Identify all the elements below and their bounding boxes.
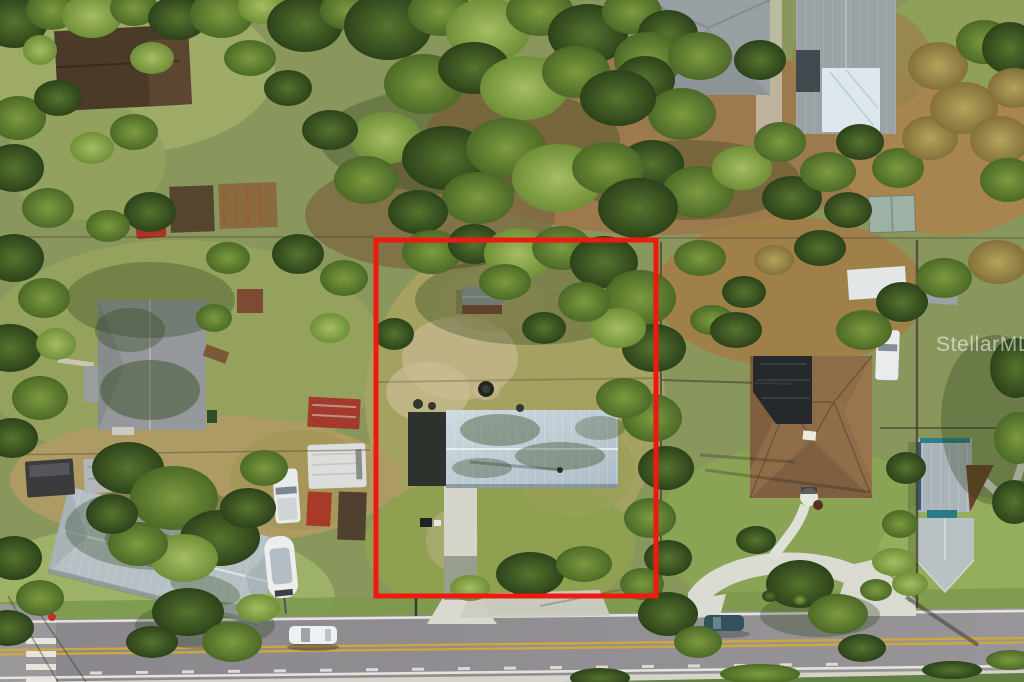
tree <box>916 258 972 298</box>
white-sedan <box>289 626 337 644</box>
round-bush <box>23 35 57 65</box>
tree <box>556 546 612 582</box>
red-shed <box>307 397 360 430</box>
tree <box>800 152 856 192</box>
tree <box>236 594 280 622</box>
tree <box>124 192 176 232</box>
tree <box>110 114 158 150</box>
tree <box>734 40 786 80</box>
tree <box>206 242 250 274</box>
roof-tree-shadow <box>460 414 540 446</box>
windshield <box>713 617 721 629</box>
subject-carport-dark <box>408 412 446 486</box>
skylight <box>803 430 817 440</box>
tree <box>580 70 656 126</box>
subject-house <box>408 410 625 488</box>
tree <box>70 132 114 164</box>
tree <box>794 230 846 266</box>
tree <box>12 376 68 420</box>
windshield <box>301 628 310 642</box>
tree <box>648 88 716 140</box>
tree <box>202 622 262 662</box>
tree <box>808 594 868 634</box>
bush <box>736 526 776 554</box>
shed <box>169 185 215 233</box>
palm-tree <box>892 572 928 596</box>
red-equipment-trailer <box>306 491 332 526</box>
neighbor-house-northeast <box>796 0 896 134</box>
tree <box>886 452 926 484</box>
crosswalk-stripe <box>26 664 56 670</box>
truck-bed <box>277 497 297 520</box>
garden-shed-northeast <box>868 195 915 233</box>
shed-rusty <box>218 182 278 229</box>
tree <box>18 278 70 318</box>
grill <box>420 518 432 527</box>
tree <box>388 190 448 234</box>
aerial-photo: StellarMLS <box>0 0 1024 682</box>
tree <box>596 378 652 418</box>
green-bin <box>207 410 217 423</box>
palm-tree <box>860 579 892 601</box>
tree <box>22 188 74 228</box>
car-shadow <box>287 643 339 651</box>
roof-tree-shadow <box>575 416 625 440</box>
tree <box>224 40 276 76</box>
yard-item <box>428 402 436 410</box>
red-shed-roof <box>307 397 360 430</box>
tree <box>479 264 531 300</box>
porch <box>112 427 134 435</box>
tree <box>882 510 918 538</box>
shrub <box>922 661 982 679</box>
shed-ridge <box>891 196 892 232</box>
tree <box>86 210 130 242</box>
crosswalk-stripe <box>26 638 56 644</box>
tree <box>34 80 82 116</box>
tree <box>86 494 138 534</box>
utility-pole <box>557 467 563 473</box>
tree <box>302 110 358 150</box>
boat-cockpit <box>269 547 293 585</box>
tree <box>674 240 726 276</box>
tree <box>272 234 324 274</box>
bush <box>762 590 778 602</box>
tree <box>674 626 722 658</box>
roof-tree-shadow <box>452 458 512 478</box>
utility-trailer-brown <box>337 492 367 541</box>
tree <box>824 192 872 228</box>
tree <box>374 318 414 350</box>
neighbor-house-east <box>750 356 872 510</box>
yard-item <box>516 404 524 412</box>
roof-tree-shadow <box>100 360 200 420</box>
fire-pit-center <box>482 385 490 393</box>
dark-opening <box>796 50 820 92</box>
red-bush <box>813 500 823 510</box>
tree <box>722 276 766 308</box>
aerial-photo-canvas: StellarMLS <box>0 0 1024 682</box>
rv-door <box>355 449 362 479</box>
tree <box>754 245 794 275</box>
white-chair <box>434 520 441 526</box>
utility-trailer-dark <box>25 458 75 497</box>
crosswalk-stripe <box>26 677 56 682</box>
tree <box>638 446 694 490</box>
yard-item <box>413 399 423 409</box>
watermark: StellarMLS <box>936 333 1024 356</box>
tree <box>598 178 678 238</box>
tree <box>320 260 368 296</box>
tree <box>196 304 232 332</box>
tree <box>624 498 676 538</box>
bush <box>794 595 806 605</box>
tree <box>496 552 564 596</box>
tree <box>240 450 288 486</box>
tree <box>754 122 806 162</box>
eave-shadow <box>446 484 618 488</box>
tree <box>558 282 610 322</box>
windshield <box>275 486 296 494</box>
tree <box>220 488 276 528</box>
tree <box>16 580 64 616</box>
tree <box>710 312 762 348</box>
door-mat <box>801 487 817 494</box>
rear-glass <box>325 629 331 641</box>
tree <box>130 42 174 74</box>
tree <box>36 328 76 360</box>
tree <box>836 124 884 160</box>
tree <box>838 634 886 662</box>
tree <box>522 312 566 344</box>
tree <box>310 313 350 343</box>
tree <box>126 626 178 658</box>
teal-band <box>927 510 957 519</box>
tree <box>264 70 312 106</box>
tree <box>668 32 732 80</box>
tree <box>442 172 514 224</box>
palm-tree <box>872 548 916 576</box>
tree <box>334 156 398 204</box>
small-brown-shed <box>237 289 263 313</box>
